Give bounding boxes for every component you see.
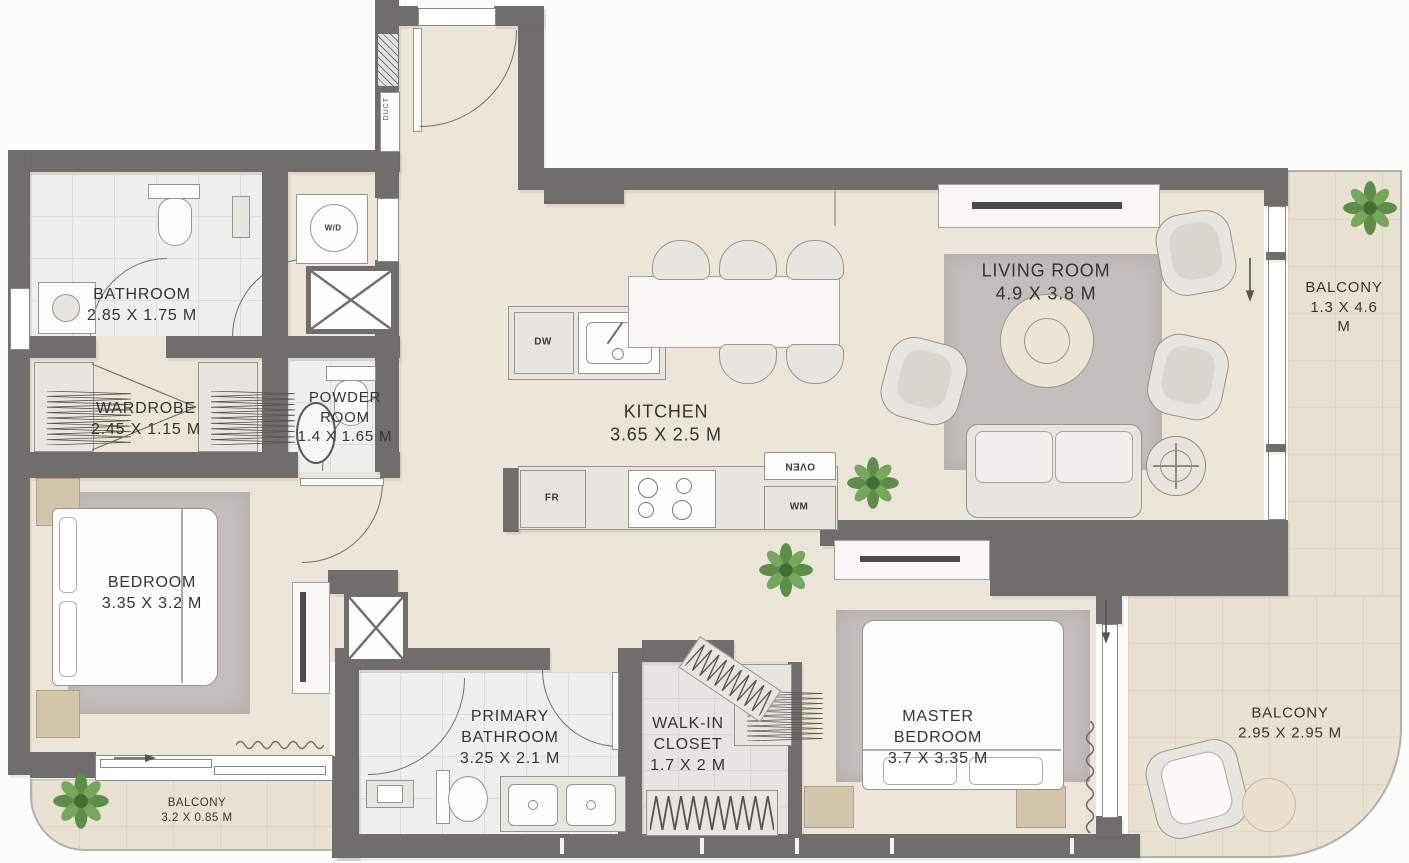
toilet-bowl	[158, 198, 192, 246]
room-label-balcony-bottom-right: BALCONY 2.95 X 2.95 M	[1238, 704, 1342, 743]
wall-joint	[890, 838, 894, 854]
plant-icon	[758, 542, 814, 598]
armchair-cushion	[893, 346, 956, 413]
sink-drain	[586, 800, 596, 810]
bedroom-tv	[300, 592, 306, 682]
wall	[990, 520, 1288, 596]
side-table	[1146, 436, 1206, 496]
room-label-balcony-bottom-left: BALCONY 3.2 X 0.85 M	[161, 796, 232, 826]
duct-label-box: DUCT	[380, 92, 400, 152]
shaft	[306, 266, 396, 334]
nightstand	[1016, 786, 1066, 828]
window-mullion	[1266, 252, 1286, 260]
duct-label: DUCT	[383, 97, 390, 120]
wardrobe-rack	[198, 362, 258, 452]
wall	[30, 452, 298, 478]
wall	[518, 6, 544, 190]
burner	[638, 478, 658, 498]
sink-drain	[612, 348, 624, 360]
curtain-wave	[236, 738, 324, 752]
pouf	[1242, 778, 1296, 832]
room-label-primary-bathroom: PRIMARY BATHROOM 3.25 X 2.1 M	[440, 707, 580, 769]
wd-closet-door[interactable]	[377, 198, 399, 262]
wall	[494, 6, 544, 26]
bedroom-window-pane	[214, 766, 326, 775]
plant-icon	[52, 772, 110, 830]
toilet	[326, 366, 376, 381]
wall	[335, 834, 1140, 858]
nightstand	[36, 690, 80, 738]
wall-joint	[700, 838, 704, 854]
shaft	[344, 592, 408, 664]
oven-label-box: OVEN	[764, 452, 836, 480]
curtain-wave	[1083, 721, 1097, 833]
burner	[676, 478, 692, 494]
room-label-bedroom: BEDROOM 3.35 X 3.2 M	[102, 573, 202, 615]
wall	[30, 336, 96, 358]
plant-icon	[846, 456, 900, 510]
closet-rack	[646, 790, 778, 836]
side-table-ring	[1160, 450, 1192, 482]
armchair-cushion	[1158, 342, 1219, 407]
room-label-bathroom: BATHROOM 2.85 X 1.75 M	[87, 285, 197, 327]
wall	[544, 168, 1288, 190]
direction-arrow	[114, 752, 158, 764]
wall	[1264, 190, 1288, 206]
sofa	[966, 424, 1142, 518]
bathroom-shelf	[232, 196, 250, 238]
room-label-powder-room: POWDER ROOM 1.4 X 1.65 M	[293, 388, 397, 447]
floor-plan: W/D DUCT DW FR OVEN WM	[0, 0, 1409, 863]
bedroom-tv-console	[292, 582, 330, 694]
fridge-label: FR	[545, 493, 559, 504]
wall-joint	[560, 838, 564, 854]
room-label-kitchen: KITCHEN 3.65 X 2.5 M	[610, 401, 722, 448]
burner	[672, 500, 692, 520]
wall	[1096, 816, 1122, 836]
wall-joint	[1070, 838, 1074, 854]
wall	[375, 172, 399, 198]
nightstand	[804, 786, 854, 828]
entry-door-opening[interactable]	[418, 8, 496, 26]
room-label-master-bedroom: MASTER BEDROOM 3.7 X 3.35 M	[873, 707, 1003, 769]
wall	[166, 336, 400, 358]
bathroom-window	[10, 288, 30, 350]
wall	[8, 150, 400, 172]
stove	[628, 470, 716, 528]
lounge-cushion	[1158, 748, 1236, 828]
armchair-cushion	[1166, 219, 1225, 283]
plant-icon	[1342, 180, 1398, 236]
sofa-cushion	[975, 431, 1053, 483]
shower-control-panel	[377, 785, 403, 803]
coffee-table-inner	[1024, 318, 1070, 364]
direction-arrow	[1244, 258, 1256, 304]
primary-bathroom-door-leaf[interactable]	[612, 672, 619, 750]
room-label-wardrobe: WARDROBE 2.45 X 1.15 M	[91, 399, 201, 441]
duct-shaft	[378, 34, 398, 86]
threshold-line	[834, 190, 836, 226]
toilet-bowl	[448, 776, 488, 822]
master-tv	[860, 556, 960, 562]
window-mullion	[1266, 444, 1286, 452]
room-label-balcony-right: BALCONY 1.3 X 4.6 M	[1305, 278, 1382, 337]
washer-dryer-label: W/D	[325, 224, 342, 233]
wall-joint	[795, 838, 799, 854]
wall	[328, 570, 398, 594]
master-balcony-window[interactable]	[1102, 624, 1118, 818]
sink-drain	[528, 800, 538, 810]
shower-control	[366, 780, 414, 808]
dishwasher-label: DW	[534, 337, 551, 348]
tv	[972, 202, 1122, 209]
wall	[544, 188, 624, 204]
washing-machine-label: WM	[790, 502, 809, 513]
pillow	[59, 601, 77, 677]
wardrobe-rack	[34, 362, 94, 452]
direction-arrow	[1100, 600, 1112, 646]
burner	[638, 502, 654, 518]
sofa-cushion	[1055, 431, 1133, 483]
wall	[398, 6, 418, 26]
room-label-walk-in-closet: WALK-IN CLOSET 1.7 X 2 M	[638, 714, 738, 776]
oven-label: OVEN	[785, 461, 815, 472]
pillow	[59, 517, 77, 593]
dining-table	[628, 276, 840, 348]
toilet	[148, 184, 200, 199]
vanity-basin	[52, 294, 80, 322]
wall	[8, 150, 30, 775]
bedroom-door-leaf[interactable]	[300, 478, 384, 486]
room-label-living-room: LIVING ROOM 4.9 X 3.8 M	[982, 260, 1111, 307]
